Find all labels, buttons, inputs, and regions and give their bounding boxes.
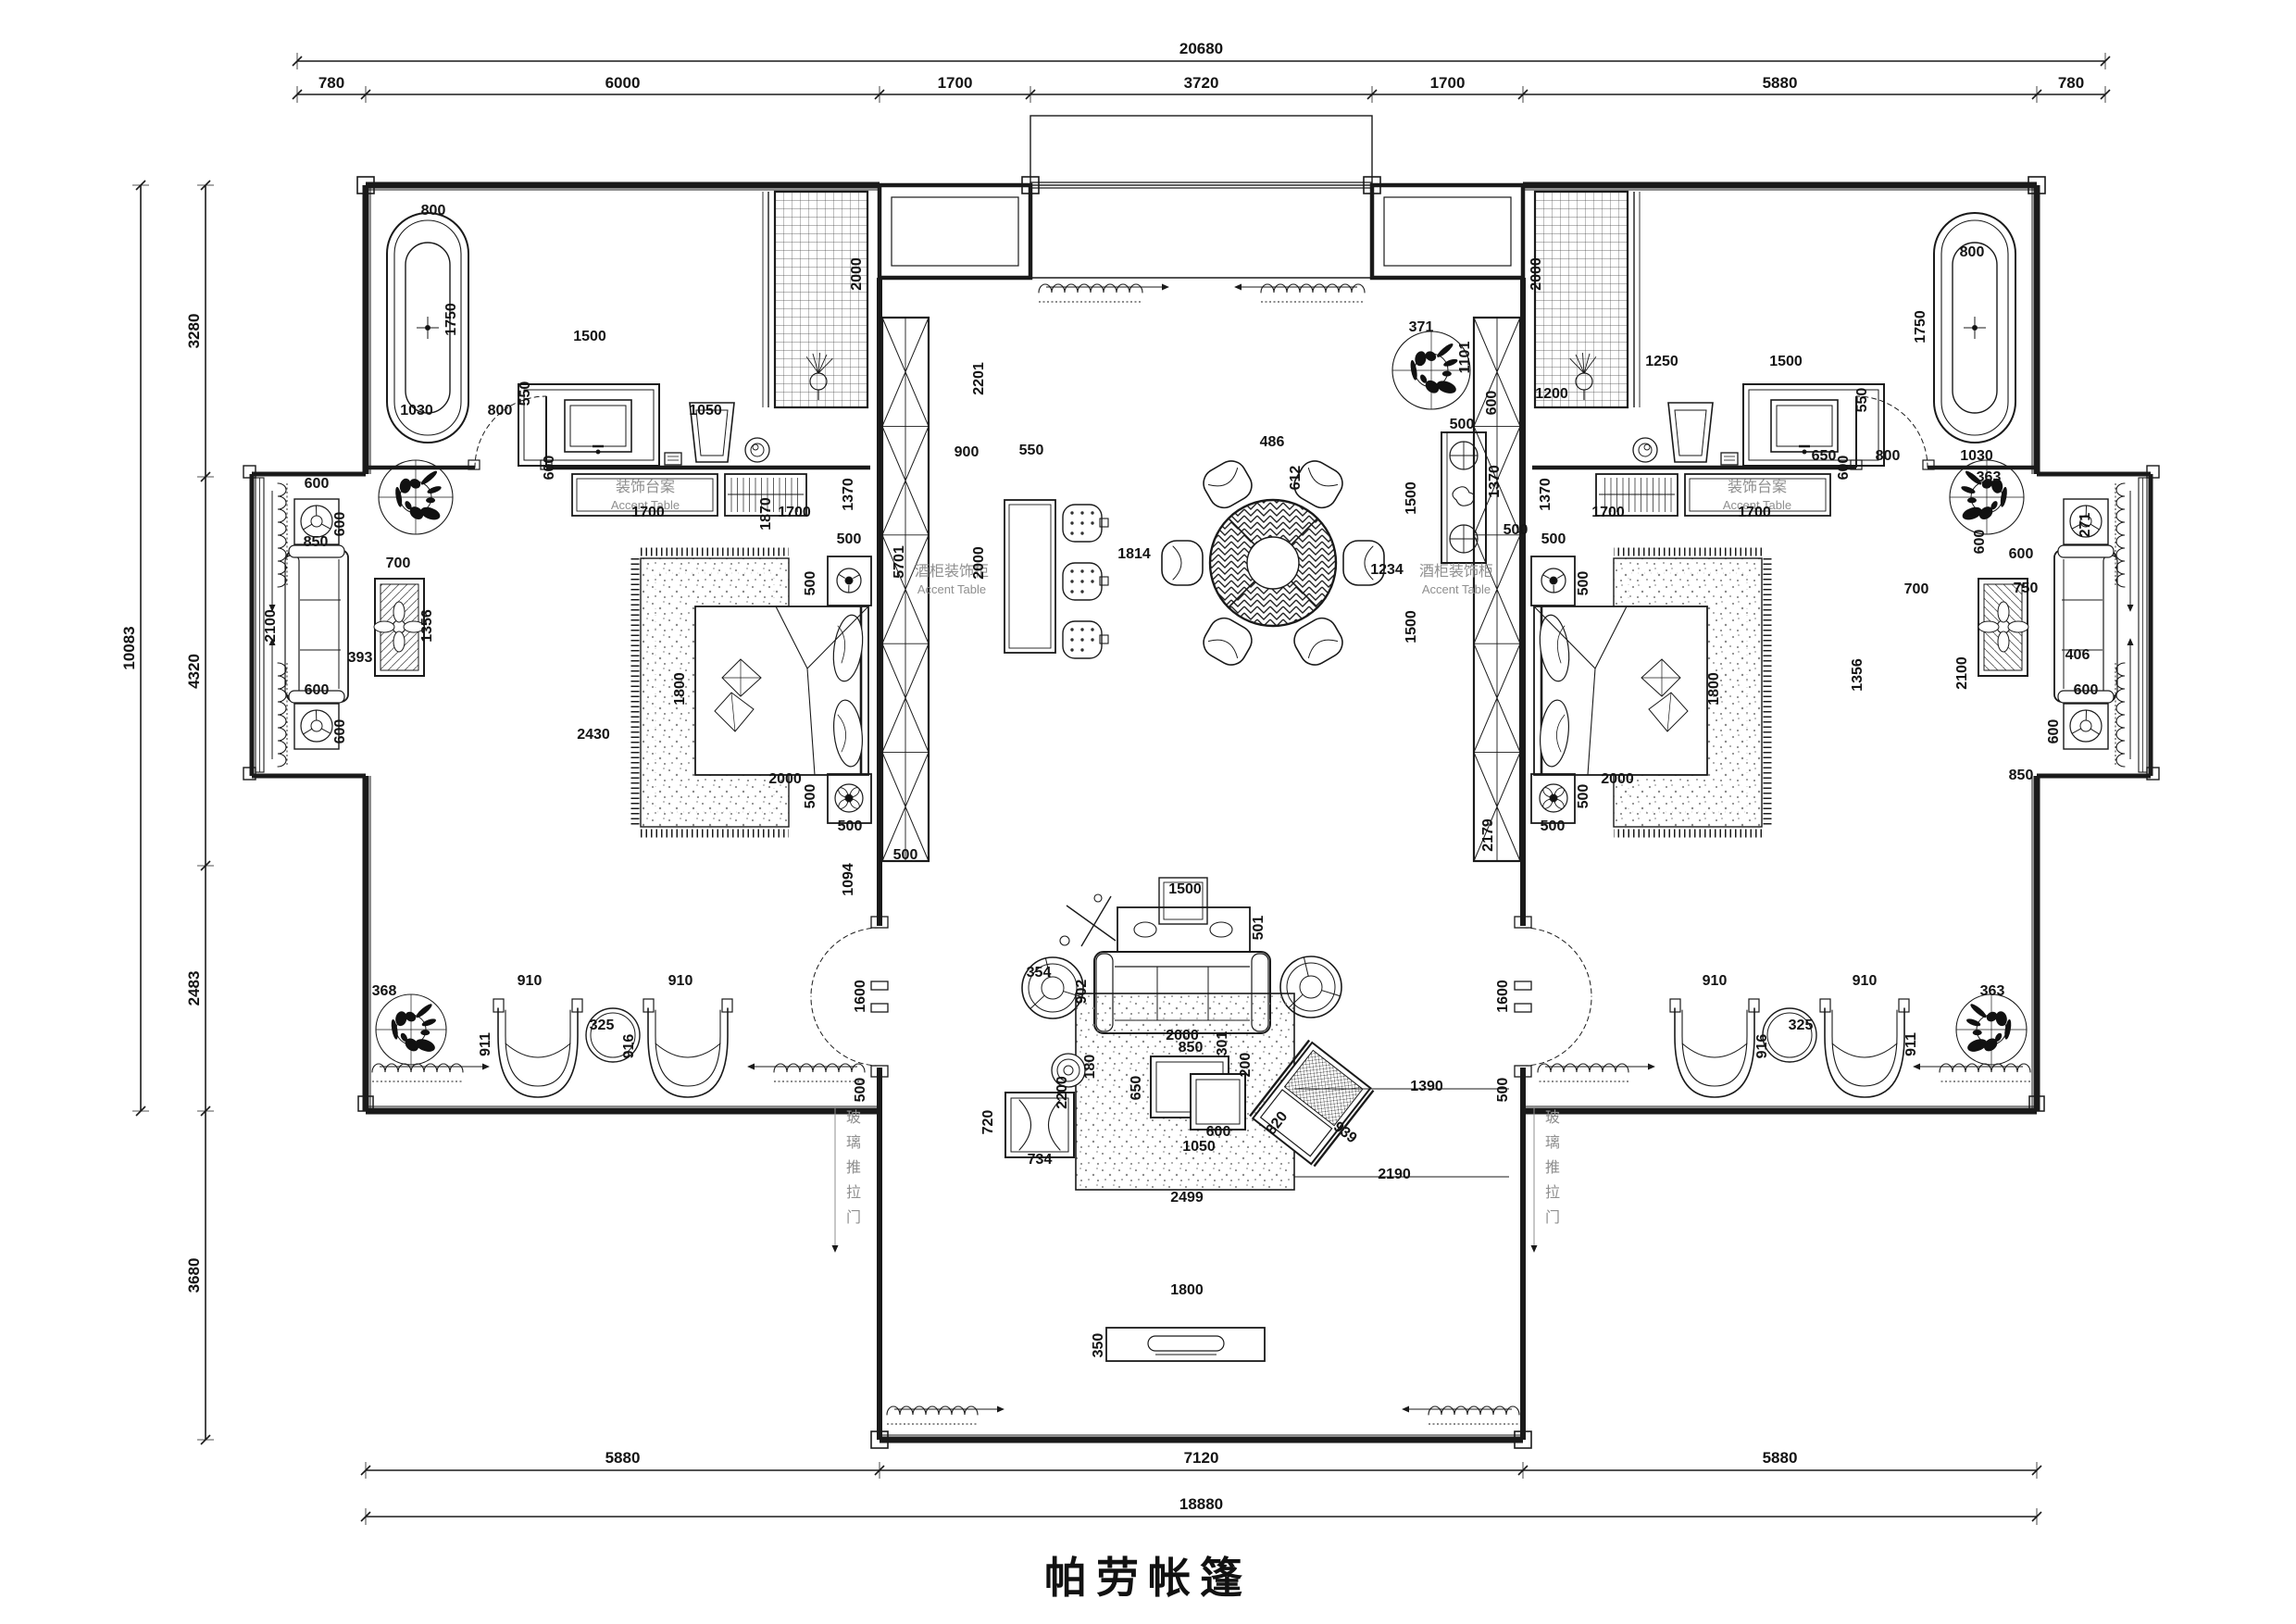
- svg-text:Accent Table: Accent Table: [917, 582, 986, 596]
- svg-text:850: 850: [1179, 1040, 1204, 1056]
- svg-text:910: 910: [518, 973, 543, 989]
- svg-text:5880: 5880: [1763, 74, 1798, 92]
- svg-text:1500: 1500: [1404, 481, 1419, 515]
- svg-text:902: 902: [1074, 980, 1090, 1005]
- svg-text:600: 600: [332, 719, 348, 744]
- svg-text:1700: 1700: [1430, 74, 1466, 92]
- floor-plan-sheet: 2068078060001700372017005880780100833280…: [0, 0, 2296, 1624]
- svg-text:1390: 1390: [1410, 1079, 1443, 1094]
- svg-text:1870: 1870: [758, 497, 774, 531]
- svg-text:600: 600: [305, 476, 330, 492]
- svg-text:1030: 1030: [1960, 448, 1993, 464]
- svg-text:10083: 10083: [120, 626, 138, 669]
- svg-text:门: 门: [1545, 1209, 1560, 1226]
- svg-text:486: 486: [1260, 434, 1285, 450]
- svg-text:180: 180: [1082, 1055, 1098, 1080]
- svg-text:2000: 2000: [1601, 771, 1634, 787]
- svg-text:1370: 1370: [1538, 478, 1554, 511]
- svg-text:850: 850: [2009, 768, 2034, 783]
- svg-text:550: 550: [1019, 443, 1044, 458]
- svg-text:1700: 1700: [778, 505, 811, 520]
- svg-text:200: 200: [1238, 1053, 1254, 1078]
- svg-text:734: 734: [1028, 1152, 1053, 1168]
- svg-text:璃: 璃: [846, 1134, 861, 1151]
- svg-text:1500: 1500: [573, 329, 606, 344]
- svg-text:780: 780: [2058, 74, 2084, 92]
- svg-text:500: 500: [853, 1078, 868, 1103]
- svg-text:800: 800: [421, 203, 446, 219]
- svg-text:700: 700: [386, 556, 411, 571]
- svg-text:1750: 1750: [443, 303, 459, 336]
- svg-text:璃: 璃: [1545, 1134, 1560, 1151]
- svg-text:3720: 3720: [1184, 74, 1219, 92]
- svg-text:500: 500: [1504, 522, 1529, 538]
- svg-text:1250: 1250: [1645, 354, 1678, 369]
- svg-text:500: 500: [838, 818, 863, 834]
- svg-text:650: 650: [1812, 448, 1837, 464]
- svg-text:780: 780: [318, 74, 344, 92]
- svg-text:800: 800: [1960, 244, 1985, 260]
- svg-text:501: 501: [1251, 916, 1267, 941]
- svg-text:推: 推: [846, 1159, 861, 1176]
- svg-text:406: 406: [2065, 647, 2090, 663]
- drawing-title: 帕劳帐篷: [0, 1544, 2296, 1605]
- svg-text:1750: 1750: [1913, 310, 1928, 344]
- svg-text:911: 911: [478, 1032, 493, 1056]
- suite-corridor-doors: [811, 917, 888, 1077]
- svg-text:368: 368: [372, 983, 397, 999]
- svg-text:3280: 3280: [185, 314, 203, 349]
- svg-text:门: 门: [846, 1209, 861, 1226]
- svg-text:600: 600: [2046, 719, 2062, 744]
- svg-text:2201: 2201: [971, 362, 987, 395]
- svg-text:20680: 20680: [1179, 40, 1223, 57]
- svg-text:1600: 1600: [1495, 980, 1511, 1013]
- svg-text:720: 720: [980, 1110, 996, 1135]
- svg-text:2100: 2100: [1954, 656, 1970, 690]
- wine-console: [1004, 500, 1108, 658]
- svg-text:1234: 1234: [1370, 562, 1404, 578]
- svg-text:2100: 2100: [263, 609, 279, 643]
- svg-text:900: 900: [955, 444, 980, 460]
- svg-text:1030: 1030: [400, 403, 433, 418]
- svg-text:600: 600: [542, 456, 557, 481]
- svg-text:325: 325: [1789, 1018, 1814, 1033]
- svg-text:612: 612: [1288, 466, 1304, 491]
- svg-text:1700: 1700: [1738, 505, 1771, 520]
- svg-text:500: 500: [1450, 417, 1475, 432]
- svg-text:1700: 1700: [938, 74, 973, 92]
- svg-text:2000: 2000: [971, 546, 987, 580]
- svg-text:1814: 1814: [1117, 546, 1151, 562]
- svg-text:5880: 5880: [1763, 1449, 1798, 1467]
- svg-text:301: 301: [1215, 1031, 1230, 1056]
- svg-text:2430: 2430: [577, 727, 610, 743]
- svg-text:910: 910: [668, 973, 693, 989]
- svg-text:350: 350: [1091, 1333, 1106, 1358]
- suite-lounge-corner: [1538, 994, 2044, 1111]
- svg-text:2499: 2499: [1170, 1190, 1204, 1206]
- svg-text:371: 371: [1409, 319, 1434, 335]
- svg-text:1700: 1700: [1591, 505, 1625, 520]
- suite-lounge-corner: [358, 994, 865, 1111]
- svg-text:1600: 1600: [853, 980, 868, 1013]
- svg-text:2483: 2483: [185, 971, 203, 1006]
- svg-text:916: 916: [621, 1034, 637, 1059]
- svg-text:750: 750: [2014, 581, 2039, 596]
- terrace: [871, 1328, 1531, 1448]
- svg-text:1101: 1101: [1457, 342, 1473, 374]
- svg-text:1094: 1094: [841, 863, 856, 896]
- svg-text:6000: 6000: [605, 74, 641, 92]
- svg-text:363: 363: [1980, 983, 2005, 999]
- svg-text:装饰台案: 装饰台案: [1728, 479, 1787, 495]
- svg-text:酒柜装饰柜: 酒柜装饰柜: [1419, 563, 1493, 580]
- svg-text:500: 500: [1576, 571, 1591, 596]
- svg-text:363: 363: [1977, 469, 2002, 485]
- svg-text:500: 500: [1495, 1078, 1511, 1103]
- svg-text:500: 500: [1541, 818, 1566, 834]
- dining-set: [1162, 331, 1470, 670]
- svg-text:500: 500: [803, 571, 818, 596]
- suite-bed: [1531, 552, 1767, 833]
- left-suite: [243, 177, 1030, 1440]
- svg-text:850: 850: [304, 534, 329, 550]
- svg-text:1700: 1700: [631, 505, 665, 520]
- svg-text:650: 650: [1129, 1076, 1144, 1101]
- svg-text:600: 600: [1972, 530, 1988, 555]
- svg-text:4320: 4320: [185, 654, 203, 689]
- suite-sofa-bay: [272, 483, 424, 767]
- svg-text:1356: 1356: [419, 609, 435, 643]
- suite-corridor-doors: [1515, 917, 1591, 1077]
- svg-text:500: 500: [1541, 531, 1566, 547]
- svg-text:18880: 18880: [1179, 1495, 1223, 1513]
- svg-text:600: 600: [332, 512, 348, 537]
- svg-text:354: 354: [1027, 965, 1052, 981]
- svg-text:1500: 1500: [1168, 881, 1202, 897]
- svg-text:拉: 拉: [846, 1184, 861, 1201]
- svg-text:550: 550: [1854, 388, 1870, 413]
- svg-text:拉: 拉: [1545, 1184, 1560, 1201]
- svg-text:1050: 1050: [689, 403, 722, 418]
- svg-text:5701: 5701: [892, 545, 907, 579]
- svg-text:600: 600: [2009, 546, 2034, 562]
- svg-text:800: 800: [1876, 448, 1901, 464]
- floor-plan-svg: 2068078060001700372017005880780100833280…: [0, 0, 2296, 1624]
- svg-text:800: 800: [488, 403, 513, 418]
- svg-text:1500: 1500: [1404, 610, 1419, 643]
- svg-text:393: 393: [348, 650, 373, 666]
- svg-text:700: 700: [1904, 581, 1929, 597]
- svg-text:推: 推: [1545, 1159, 1560, 1176]
- svg-text:911: 911: [1903, 1032, 1919, 1056]
- svg-text:1500: 1500: [1769, 354, 1803, 369]
- svg-text:910: 910: [1703, 973, 1728, 989]
- svg-text:500: 500: [1576, 784, 1591, 809]
- svg-text:1800: 1800: [1170, 1282, 1204, 1298]
- svg-text:2179: 2179: [1480, 818, 1496, 852]
- svg-text:1200: 1200: [1535, 386, 1568, 402]
- svg-text:2000: 2000: [768, 771, 802, 787]
- svg-text:910: 910: [1853, 973, 1878, 989]
- suite-bed: [635, 552, 871, 833]
- svg-text:2200: 2200: [1054, 1076, 1070, 1109]
- center-top: [1022, 116, 1380, 302]
- svg-text:600: 600: [305, 682, 330, 698]
- svg-text:325: 325: [590, 1018, 615, 1033]
- svg-text:7120: 7120: [1184, 1449, 1219, 1467]
- svg-text:550: 550: [518, 381, 533, 406]
- svg-text:916: 916: [1754, 1034, 1770, 1059]
- svg-text:1800: 1800: [672, 672, 688, 706]
- svg-text:500: 500: [837, 531, 862, 547]
- svg-text:271: 271: [2078, 513, 2093, 538]
- svg-text:600: 600: [1206, 1124, 1231, 1140]
- svg-text:1050: 1050: [1182, 1139, 1216, 1155]
- svg-text:1370: 1370: [841, 478, 856, 511]
- svg-text:1800: 1800: [1706, 672, 1722, 706]
- svg-text:1356: 1356: [1850, 658, 1865, 692]
- svg-text:600: 600: [2074, 682, 2099, 698]
- svg-text:600: 600: [1836, 456, 1852, 481]
- svg-text:2000: 2000: [1529, 257, 1544, 291]
- bar-counter: [1441, 432, 1486, 563]
- svg-text:500: 500: [893, 847, 918, 863]
- svg-text:600: 600: [1484, 391, 1500, 416]
- svg-text:玻: 玻: [1545, 1109, 1560, 1126]
- svg-text:Accent Table: Accent Table: [1422, 582, 1491, 596]
- svg-text:3680: 3680: [185, 1258, 203, 1293]
- svg-text:500: 500: [803, 784, 818, 809]
- svg-text:5880: 5880: [605, 1449, 641, 1467]
- svg-text:2190: 2190: [1378, 1167, 1411, 1182]
- svg-text:装饰台案: 装饰台案: [616, 479, 675, 495]
- svg-text:2000: 2000: [849, 257, 865, 291]
- svg-text:玻: 玻: [846, 1109, 861, 1126]
- svg-text:1370: 1370: [1487, 465, 1503, 498]
- right-suite: [1372, 177, 2159, 1440]
